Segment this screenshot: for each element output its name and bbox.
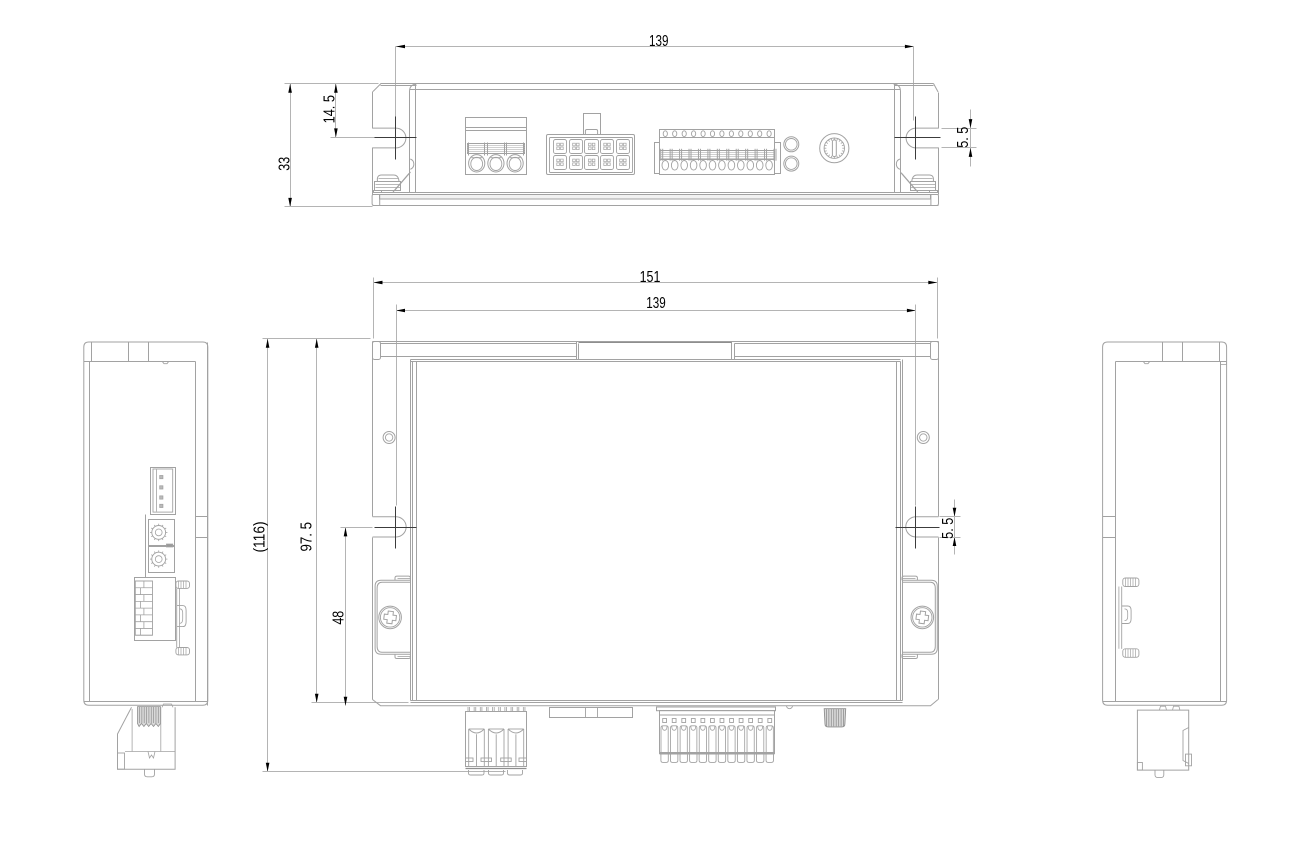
svg-text:139: 139 [649,31,669,49]
svg-text:97. 5: 97. 5 [298,522,315,552]
svg-text:139: 139 [646,293,666,311]
svg-text:(116): (116) [251,521,269,552]
svg-text:151: 151 [640,269,661,287]
svg-text:5. 5: 5. 5 [940,518,958,539]
svg-text:33: 33 [276,157,294,171]
svg-text:5. 5: 5. 5 [955,127,973,148]
svg-text:48: 48 [330,611,348,625]
svg-text:14. 5: 14. 5 [321,95,339,123]
